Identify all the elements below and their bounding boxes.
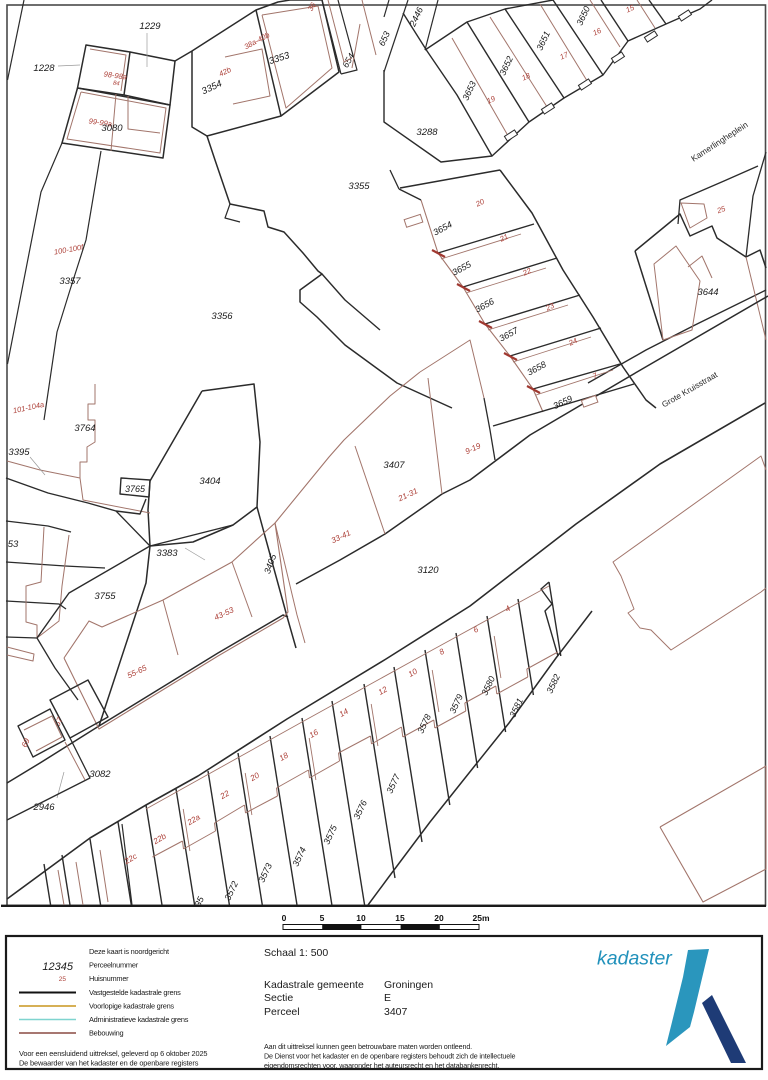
svg-text:3577: 3577 (385, 772, 403, 795)
svg-text:38a-40b: 38a-40b (243, 30, 272, 51)
svg-text:3653: 3653 (461, 80, 479, 102)
svg-text:De bewaarder van het kadaster: De bewaarder van het kadaster en de open… (19, 1059, 199, 1068)
svg-text:3356: 3356 (211, 311, 233, 322)
svg-text:19: 19 (485, 94, 497, 106)
svg-text:3755: 3755 (94, 591, 116, 602)
svg-text:3575: 3575 (322, 823, 340, 846)
svg-text:21: 21 (497, 232, 509, 244)
svg-text:Schaal 1: 500: Schaal 1: 500 (264, 947, 328, 959)
svg-text:2946: 2946 (32, 802, 55, 813)
svg-text:16: 16 (591, 26, 603, 38)
svg-text:Voorlopige kadastrale grens: Voorlopige kadastrale grens (89, 1002, 174, 1011)
svg-text:12345: 12345 (42, 961, 73, 973)
svg-text:Huisnummer: Huisnummer (89, 974, 129, 983)
svg-text:20: 20 (434, 913, 444, 923)
svg-text:53: 53 (8, 539, 19, 550)
svg-text:3357: 3357 (59, 276, 81, 287)
svg-text:3651: 3651 (535, 30, 553, 52)
svg-text:3765: 3765 (125, 484, 146, 494)
svg-text:eigendomsrechten voor, waarond: eigendomsrechten voor, waaronder het aut… (264, 1061, 499, 1070)
svg-text:3576: 3576 (352, 799, 370, 821)
svg-text:3572: 3572 (223, 880, 241, 902)
svg-text:3764: 3764 (74, 423, 95, 434)
svg-text:3581: 3581 (508, 697, 526, 719)
svg-text:Voor een eensluidend uittrekse: Voor een eensluidend uittreksel, gelever… (19, 1049, 207, 1058)
svg-text:3659: 3659 (552, 394, 574, 412)
svg-text:Deze kaart is noordgericht: Deze kaart is noordgericht (89, 947, 169, 956)
svg-text:14: 14 (338, 706, 351, 719)
svg-text:3574: 3574 (291, 846, 309, 868)
svg-text:Kadastrale gemeente: Kadastrale gemeente (264, 979, 364, 991)
svg-text:2446: 2446 (407, 6, 425, 29)
svg-text:Perceel: Perceel (264, 1006, 300, 1018)
svg-text:15: 15 (395, 913, 405, 923)
svg-text:Aan dit uittreksel kunnen geen: Aan dit uittreksel kunnen geen betrouwba… (264, 1042, 472, 1051)
svg-text:25m: 25m (472, 913, 489, 923)
svg-text:8: 8 (438, 647, 447, 657)
svg-text:3383: 3383 (156, 548, 178, 559)
svg-text:22: 22 (218, 788, 232, 801)
svg-text:kadaster: kadaster (597, 948, 673, 970)
svg-text:55-65: 55-65 (126, 663, 149, 680)
svg-text:3655: 3655 (450, 259, 473, 278)
svg-text:Groningen: Groningen (384, 979, 433, 991)
svg-text:3405: 3405 (262, 552, 279, 575)
svg-text:3354: 3354 (200, 78, 224, 97)
svg-text:10: 10 (356, 913, 366, 923)
svg-text:Grote Kruisstraat: Grote Kruisstraat (660, 369, 720, 409)
svg-text:Sectie: Sectie (264, 992, 293, 1004)
svg-text:9-19: 9-19 (464, 441, 483, 456)
svg-text:Kamerlingheplein: Kamerlingheplein (689, 119, 750, 163)
svg-text:653: 653 (377, 30, 392, 48)
svg-text:12: 12 (377, 684, 390, 697)
svg-text:1228: 1228 (33, 63, 55, 74)
svg-text:3407: 3407 (383, 460, 405, 471)
svg-text:3579: 3579 (448, 693, 466, 715)
svg-text:3355: 3355 (348, 181, 370, 192)
svg-text:25: 25 (59, 976, 67, 983)
svg-text:3082: 3082 (89, 769, 111, 780)
svg-text:Perceelnummer: Perceelnummer (89, 961, 139, 970)
svg-text:0: 0 (282, 913, 287, 923)
svg-text:3395: 3395 (8, 447, 30, 458)
svg-text:E: E (384, 992, 391, 1004)
svg-text:3120: 3120 (417, 565, 439, 576)
svg-text:3650: 3650 (575, 5, 593, 27)
svg-text:3580: 3580 (480, 675, 498, 697)
svg-text:Bebouwing: Bebouwing (89, 1029, 123, 1038)
svg-text:36: 36 (306, 0, 318, 12)
svg-text:Administratieve kadastrale gre: Administratieve kadastrale grens (89, 1015, 189, 1024)
svg-text:4: 4 (504, 604, 513, 614)
svg-text:18: 18 (278, 750, 291, 763)
svg-text:3080: 3080 (101, 123, 123, 134)
svg-text:20: 20 (473, 197, 486, 209)
svg-text:20: 20 (248, 770, 262, 783)
svg-text:98-98a: 98-98a (103, 69, 127, 81)
svg-text:3573: 3573 (257, 862, 275, 884)
svg-text:6: 6 (472, 625, 481, 635)
svg-text:3644: 3644 (697, 287, 718, 298)
svg-text:5: 5 (320, 913, 325, 923)
svg-text:3582: 3582 (545, 673, 563, 695)
svg-text:100-100f: 100-100f (53, 242, 85, 256)
svg-text:3657: 3657 (497, 325, 520, 344)
svg-text:3404: 3404 (199, 476, 220, 487)
svg-text:84: 84 (112, 81, 120, 88)
svg-text:3407: 3407 (384, 1006, 408, 1018)
svg-text:42b: 42b (217, 65, 232, 78)
svg-text:22: 22 (520, 266, 533, 278)
svg-text:43-53: 43-53 (213, 605, 236, 622)
svg-text:3656: 3656 (473, 296, 495, 314)
svg-text:3654: 3654 (431, 219, 453, 237)
svg-text:21-31: 21-31 (396, 486, 419, 503)
svg-text:3353: 3353 (267, 50, 291, 67)
svg-text:3288: 3288 (416, 127, 438, 138)
svg-text:De Dienst voor het kadaster en: De Dienst voor het kadaster en de openba… (264, 1052, 516, 1061)
svg-text:3578: 3578 (416, 713, 434, 735)
svg-text:7: 7 (591, 370, 599, 380)
svg-text:33-41: 33-41 (330, 528, 352, 545)
svg-text:10: 10 (407, 666, 420, 679)
svg-text:101-104a: 101-104a (12, 400, 45, 415)
svg-text:22a: 22a (185, 812, 202, 827)
svg-text:3658: 3658 (525, 359, 547, 377)
svg-text:3652: 3652 (498, 55, 516, 77)
svg-text:25: 25 (715, 204, 728, 216)
svg-text:1229: 1229 (139, 21, 161, 32)
svg-text:69: 69 (20, 737, 32, 749)
svg-text:22b: 22b (151, 831, 168, 846)
svg-text:Vastgestelde kadastrale grens: Vastgestelde kadastrale grens (89, 988, 181, 997)
